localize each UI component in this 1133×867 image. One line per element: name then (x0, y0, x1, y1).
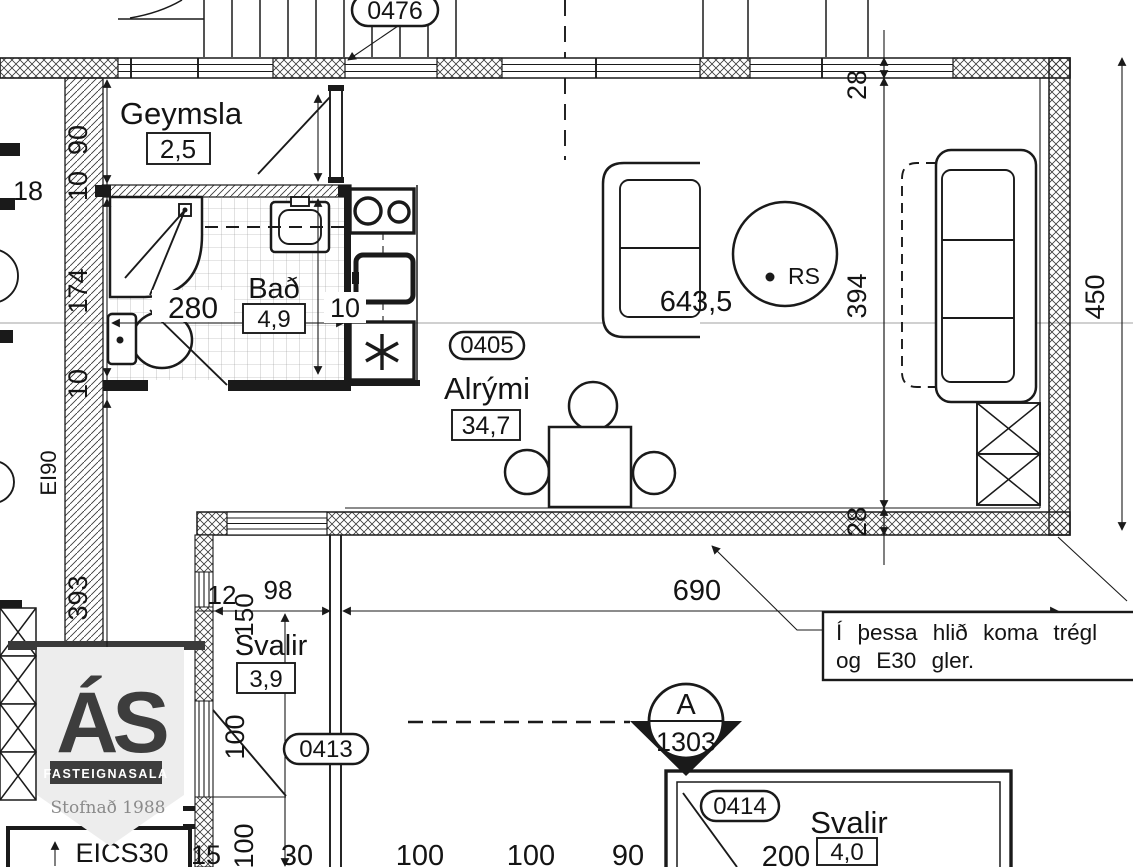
railing-x-boxes (0, 608, 36, 800)
tag-0414: 0414 (713, 793, 766, 820)
room-area-bad: 4,9 (257, 306, 290, 333)
dining-table (549, 427, 631, 507)
dim-90: 90 (63, 125, 93, 155)
eics30-label: EICS30 (75, 838, 168, 867)
dim-10-bath: 10 (330, 293, 360, 323)
dim-643: 643,5 (660, 286, 733, 318)
agency-logo: ÁS FASTEIGNASALA Stofnað 1988 (37, 647, 184, 846)
dim-394: 394 (842, 273, 872, 318)
dim-10-upper: 10 (63, 171, 93, 201)
logo-name: FASTEIGNASALA (43, 767, 168, 781)
dim-10-lower: 10 (63, 369, 93, 399)
double-sink (350, 189, 414, 233)
dim-18: 18 (13, 176, 43, 206)
room-area-alrymi: 34,7 (462, 412, 511, 440)
dim-100-upper: 100 (220, 714, 250, 759)
dim-100-lower: 100 (229, 823, 259, 867)
top-wall (0, 58, 1070, 78)
round-table (733, 202, 837, 306)
note-line-1: Í þessa hlið koma trégl (836, 620, 1097, 645)
room-label-bad: Bað (248, 273, 300, 305)
tag-0476: 0476 (367, 0, 423, 25)
dim-200: 200 (762, 841, 810, 867)
room-label-alrymi: Alrými (444, 371, 530, 406)
room-label-svalir-small: Svalir (235, 630, 308, 662)
dim-28-bottom: 28 (842, 507, 872, 537)
dim-100-b: 100 (507, 840, 555, 867)
dim-100-a: 100 (396, 840, 444, 867)
room-area-svalir-small: 3,9 (249, 666, 282, 693)
chair (633, 452, 675, 494)
chair (569, 382, 617, 430)
dim-30: 30 (281, 840, 313, 867)
section-number: 1303 (656, 727, 716, 757)
dim-28-top: 28 (842, 70, 872, 100)
rs-label: RS (788, 263, 820, 289)
floor-plan-page: 18 90 10 174 10 393 EI90 280 10 643,5 28… (0, 0, 1133, 867)
dim-450: 450 (1080, 274, 1110, 319)
bottom-wall (197, 508, 1070, 535)
note-box: Í þessa hlið koma trégl og E30 gler. (823, 612, 1133, 680)
tag-0405: 0405 (460, 332, 513, 359)
room-label-svalir-bottom: Svalir (810, 805, 888, 840)
section-letter: A (676, 689, 696, 721)
room-area-svalir-bottom: 4,0 (830, 839, 863, 866)
room-label-geymsla: Geymsla (120, 96, 243, 131)
washbasin (271, 197, 329, 252)
shelf-unit (977, 403, 1040, 505)
logo-monogram: ÁS (56, 675, 166, 771)
dim-98: 98 (264, 575, 293, 605)
dim-393: 393 (63, 575, 93, 620)
logo-tagline: Stofnað 1988 (51, 798, 166, 818)
dim-174: 174 (63, 268, 93, 313)
floor-plan-canvas: 18 90 10 174 10 393 EI90 280 10 643,5 28… (0, 0, 1133, 867)
dim-280: 280 (168, 292, 218, 325)
chair (505, 450, 549, 494)
dim-15: 15 (191, 840, 221, 867)
note-line-2: og E30 gler. (836, 648, 974, 673)
ei90-label: EI90 (36, 450, 61, 495)
tag-0413: 0413 (299, 736, 352, 763)
dim-90-bottom: 90 (612, 840, 644, 867)
kitchen-strip (350, 185, 417, 385)
room-area-geymsla: 2,5 (160, 134, 196, 164)
floor-drain-box (350, 322, 414, 380)
dim-690: 690 (673, 575, 721, 607)
smoke-detector-dot (766, 273, 775, 282)
